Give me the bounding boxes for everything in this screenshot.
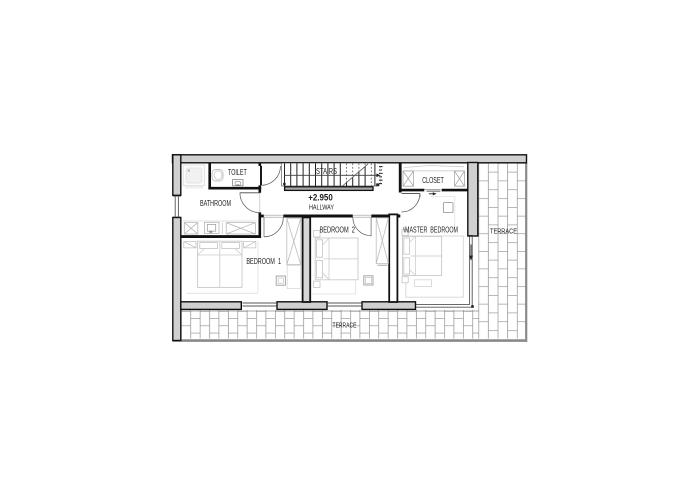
- svg-text:BEDROOM 1: BEDROOM 1: [246, 256, 281, 266]
- svg-text:MASTER BEDROOM: MASTER BEDROOM: [405, 225, 458, 235]
- svg-text:CLOSET: CLOSET: [422, 176, 444, 185]
- svg-text:TERRACE: TERRACE: [490, 226, 517, 235]
- svg-text:TOILET: TOILET: [228, 168, 247, 177]
- svg-text:BEDROOM 2: BEDROOM 2: [319, 225, 355, 235]
- svg-text:+2.950: +2.950: [308, 192, 333, 202]
- svg-text:HALLWAY: HALLWAY: [309, 203, 334, 212]
- svg-text:TERRACE: TERRACE: [333, 320, 357, 329]
- svg-text:BATHROOM: BATHROOM: [200, 199, 231, 208]
- svg-text:STAIRS: STAIRS: [316, 167, 337, 176]
